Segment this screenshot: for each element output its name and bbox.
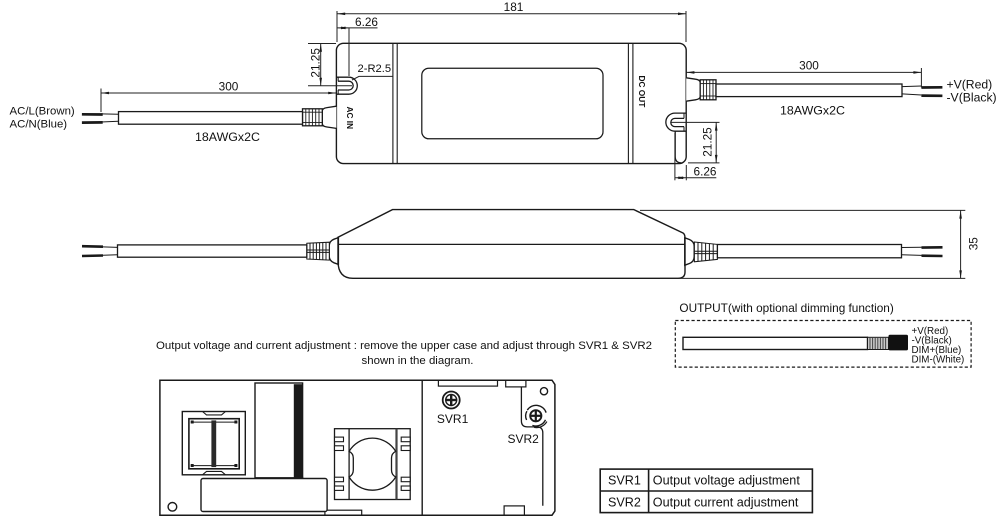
svg-text:AC/N(Blue): AC/N(Blue) bbox=[10, 119, 68, 131]
svg-text:Output current adjustment: Output current adjustment bbox=[653, 495, 799, 509]
svg-text:SVR1: SVR1 bbox=[437, 412, 469, 426]
svg-text:AC/L(Brown): AC/L(Brown) bbox=[10, 106, 75, 118]
svg-text:35: 35 bbox=[967, 237, 981, 251]
svg-text:181: 181 bbox=[504, 0, 524, 14]
svg-text:21.25: 21.25 bbox=[309, 48, 323, 78]
svg-text:-V(Black): -V(Black) bbox=[947, 90, 997, 104]
svg-text:Output voltage adjustment: Output voltage adjustment bbox=[653, 474, 801, 488]
svg-text:6.26: 6.26 bbox=[355, 15, 378, 29]
svg-text:SVR2: SVR2 bbox=[608, 495, 641, 509]
svg-text:6.26: 6.26 bbox=[694, 164, 717, 178]
svg-text:DC OUT: DC OUT bbox=[637, 76, 647, 108]
svg-text:OUTPUT(with optional dimming f: OUTPUT(with optional dimming function) bbox=[679, 301, 893, 315]
svg-text:18AWGx2C: 18AWGx2C bbox=[780, 103, 845, 117]
svg-text:Output voltage and current adj: Output voltage and current adjustment : … bbox=[156, 340, 652, 352]
svg-text:DIM-(White): DIM-(White) bbox=[912, 355, 965, 366]
svg-text:300: 300 bbox=[219, 80, 239, 94]
svg-text:SVR2: SVR2 bbox=[508, 432, 540, 446]
svg-text:shown in the diagram.: shown in the diagram. bbox=[362, 355, 474, 367]
svg-text:AC IN: AC IN bbox=[345, 107, 355, 130]
svg-text:SVR1: SVR1 bbox=[608, 474, 641, 488]
svg-text:18AWGx2C: 18AWGx2C bbox=[195, 130, 260, 144]
svg-text:21.25: 21.25 bbox=[701, 127, 715, 157]
svg-text:2-R2.5: 2-R2.5 bbox=[358, 63, 392, 75]
svg-text:300: 300 bbox=[799, 59, 819, 73]
